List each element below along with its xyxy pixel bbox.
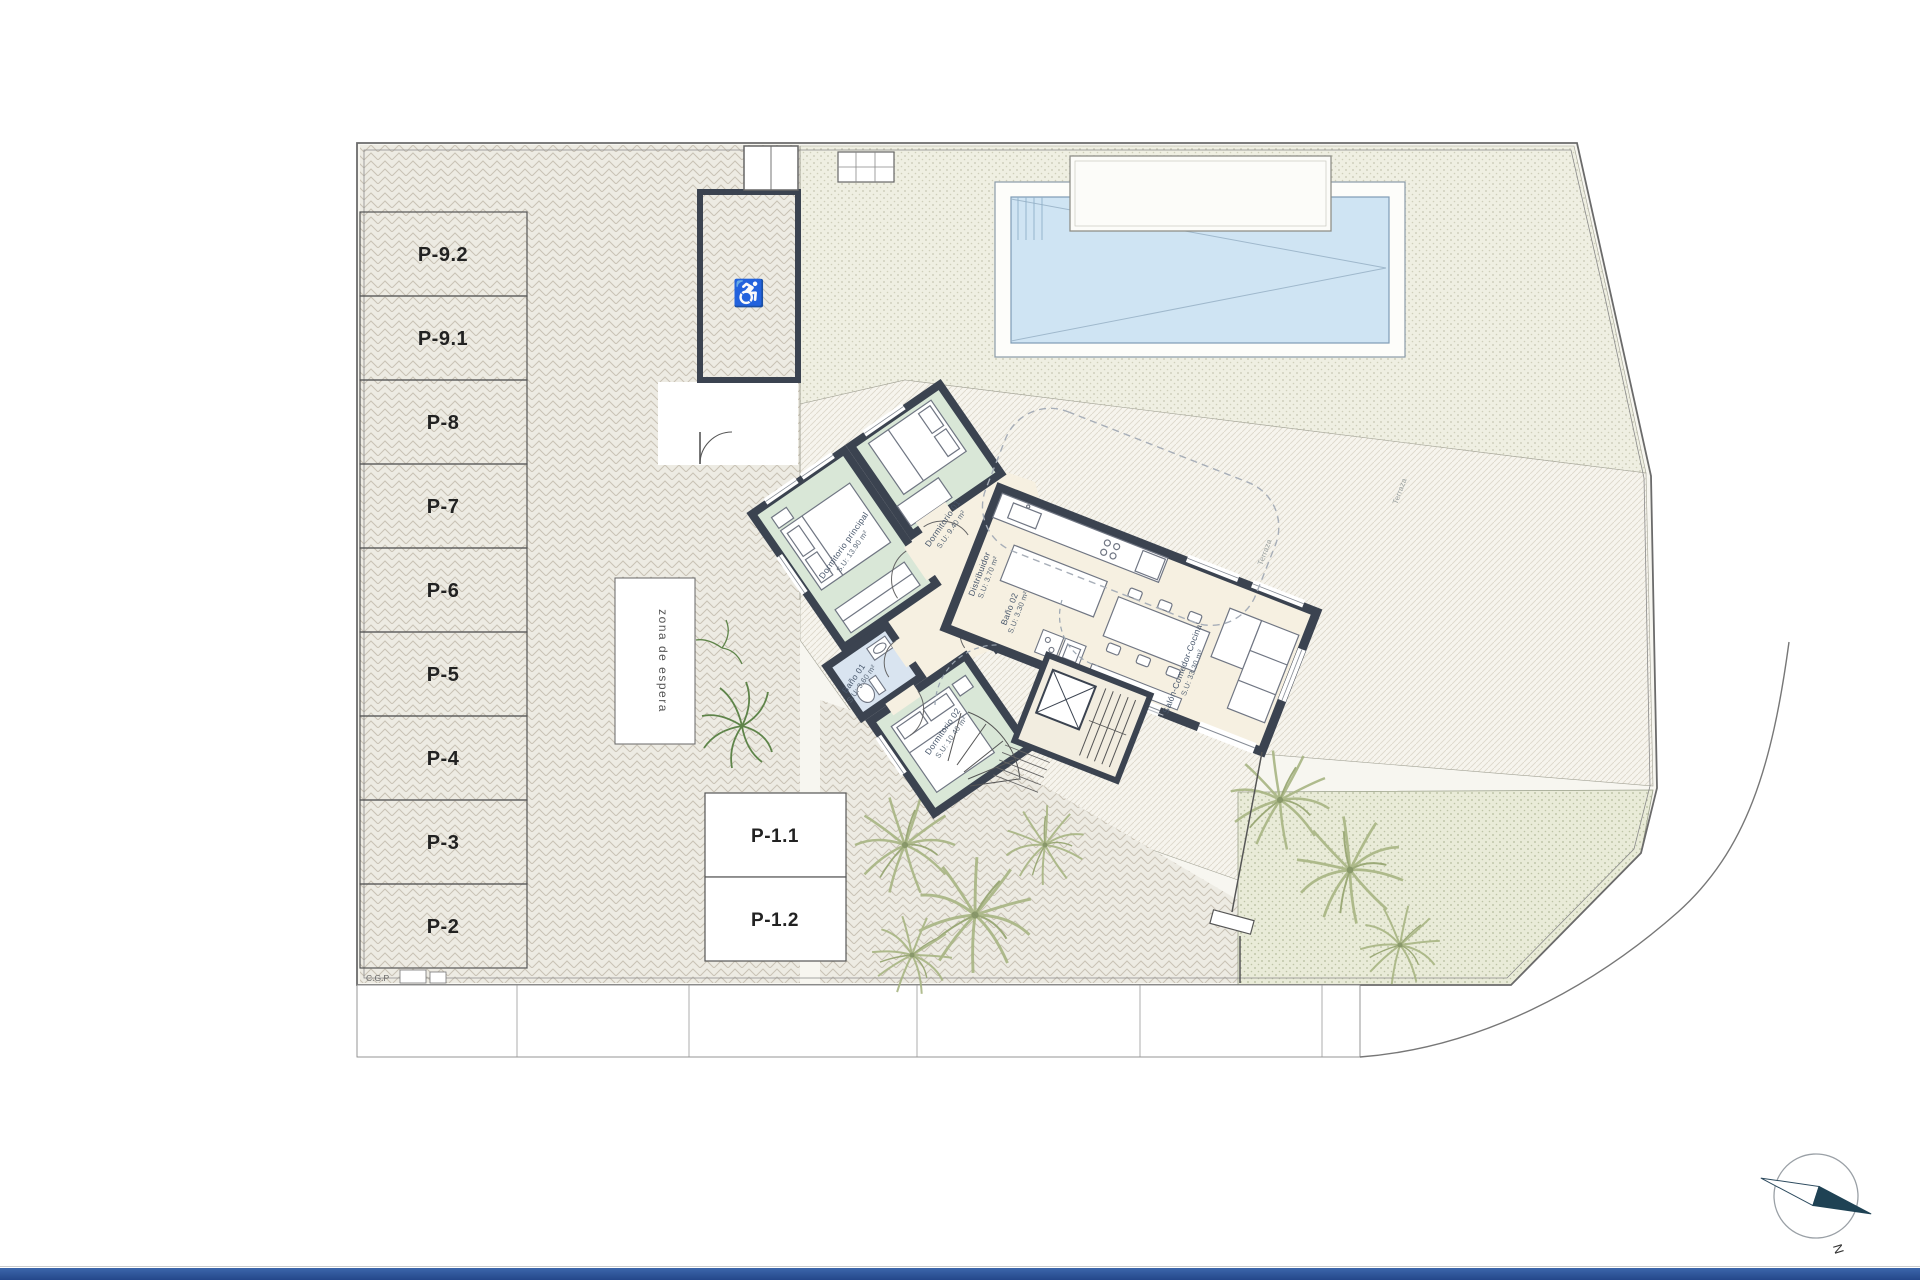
waiting-zone-label: zona de espera <box>656 609 670 713</box>
parking-stall-label: P-3 <box>427 832 460 854</box>
parking-stall-label: P-6 <box>427 580 460 602</box>
floor-plan-drawing: P-9.2 P-9.1 P-8 P-7 P-6 P-5 P-4 P-3 P-2 … <box>0 0 1920 1280</box>
parking-stall-label: P-2 <box>427 916 460 938</box>
gate-walkway <box>658 382 798 465</box>
storage-building: ♿ <box>700 192 798 380</box>
footer-divider <box>0 1266 1920 1267</box>
parking-stall-label: P-8 <box>427 412 460 434</box>
parking-stall-label: P-9.2 <box>418 244 468 266</box>
front-stall-label: P-1.1 <box>751 826 799 847</box>
pool-pergola <box>1070 156 1331 231</box>
waiting-zone-box: zona de espera <box>615 578 695 744</box>
front-parking-boxes: P-1.1 P-1.2 <box>705 793 846 961</box>
site-plan-page: P-9.2 P-9.1 P-8 P-7 P-6 P-5 P-4 P-3 P-2 … <box>0 0 1920 1280</box>
parking-stall-label: P-7 <box>427 496 460 518</box>
compass-rose: N <box>1745 1138 1884 1263</box>
compass-north-label: N <box>1830 1242 1847 1255</box>
parking-stall-label: P-4 <box>427 748 460 770</box>
sidewalk <box>357 985 1360 1057</box>
pool-area <box>995 156 1405 357</box>
parking-stall-label: P-5 <box>427 664 460 686</box>
wheelchair-icon: ♿ <box>733 278 765 308</box>
front-stall-label: P-1.2 <box>751 910 799 931</box>
installations-grid-box <box>838 152 894 182</box>
rear-lawn-stipple <box>1238 790 1653 985</box>
footer-bar <box>0 1268 1920 1280</box>
parking-stall-label: P-9.1 <box>418 328 468 350</box>
meter-cabinet <box>744 146 798 190</box>
corner-label: C.G.P <box>366 973 389 983</box>
